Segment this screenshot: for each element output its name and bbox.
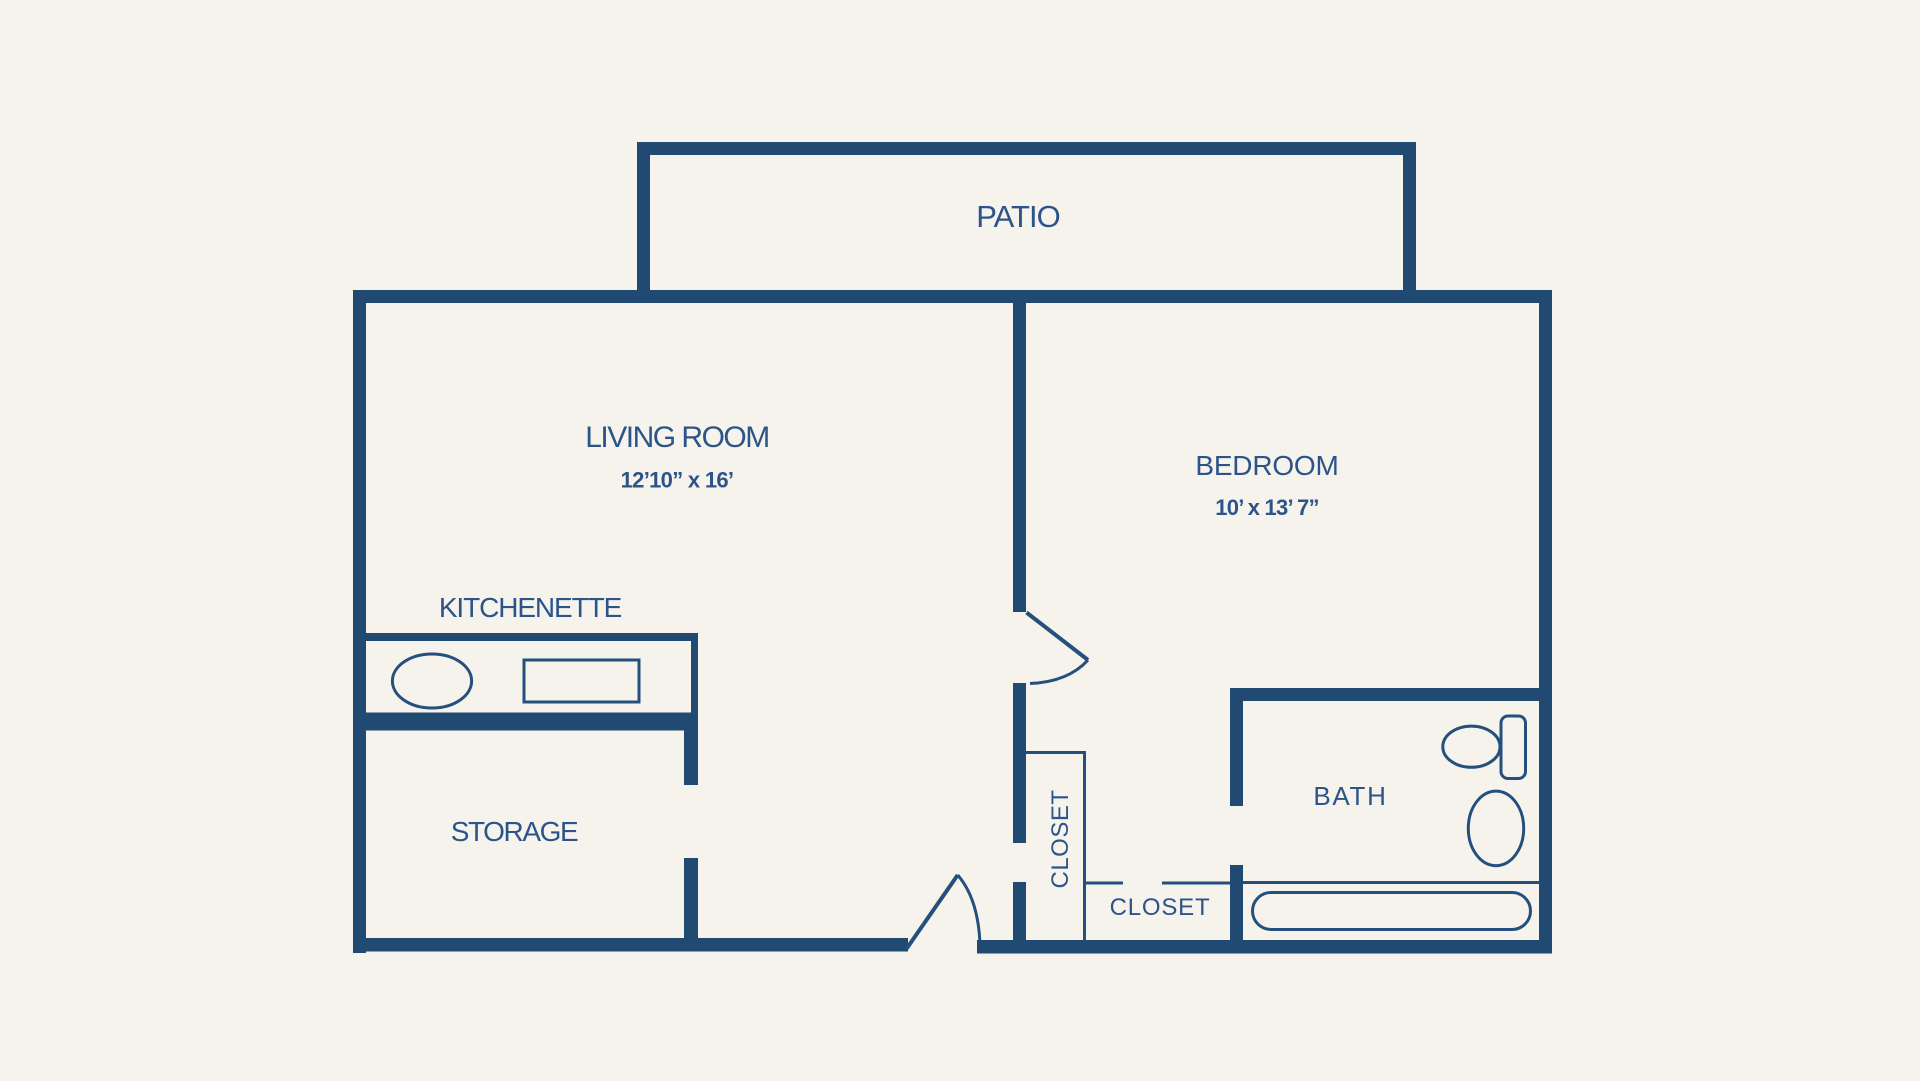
svg-text:LIVING ROOM: LIVING ROOM <box>585 421 769 454</box>
svg-text:BEDROOM: BEDROOM <box>1195 450 1338 481</box>
svg-text:PATIO: PATIO <box>976 199 1059 234</box>
svg-text:CLOSET: CLOSET <box>1110 894 1211 921</box>
svg-text:10’ x 13’ 7”: 10’ x 13’ 7” <box>1215 495 1319 520</box>
svg-text:CLOSET: CLOSET <box>1047 789 1074 888</box>
svg-text:BATH: BATH <box>1313 781 1387 811</box>
svg-text:STORAGE: STORAGE <box>451 816 578 847</box>
svg-text:12’10” x 16’: 12’10” x 16’ <box>621 468 734 493</box>
svg-text:KITCHENETTE: KITCHENETTE <box>439 592 622 623</box>
